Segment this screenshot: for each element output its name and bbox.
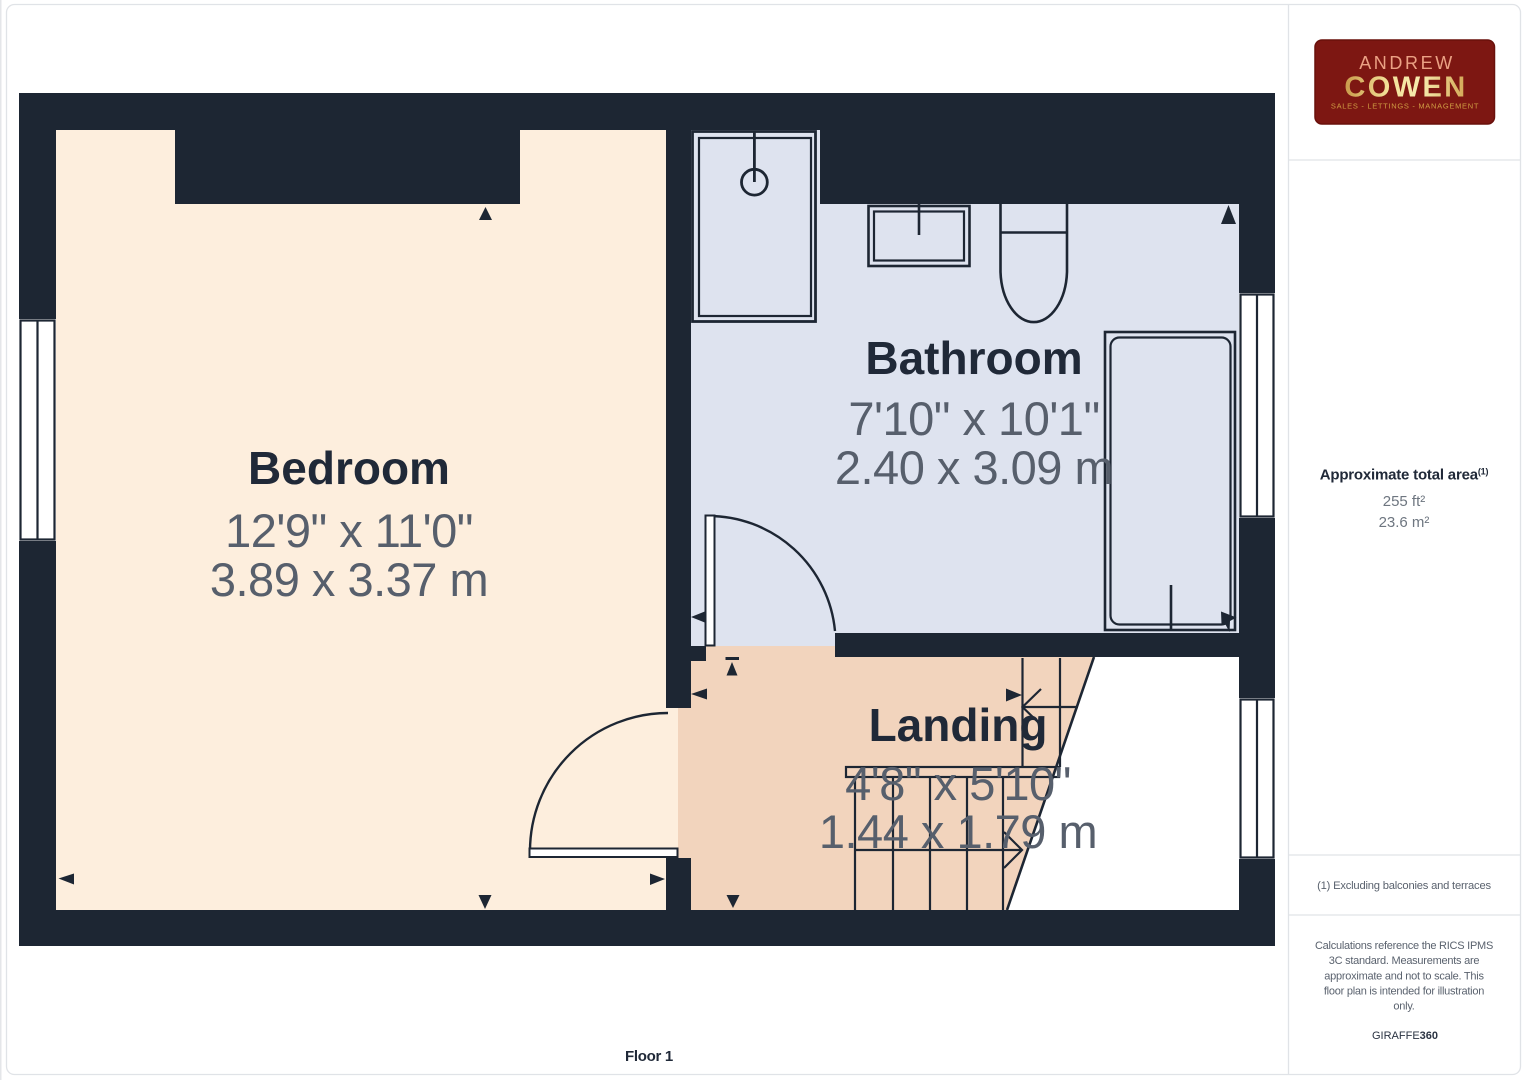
svg-text:Floor 1: Floor 1 (625, 1048, 673, 1065)
svg-text:3.89 x 3.37 m: 3.89 x 3.37 m (210, 553, 488, 606)
svg-text:7'10" x 10'1": 7'10" x 10'1" (848, 392, 1099, 445)
svg-text:23.6 m²: 23.6 m² (1379, 514, 1430, 531)
svg-text:Approximate total area(1): Approximate total area(1) (1320, 467, 1489, 484)
svg-text:Bathroom: Bathroom (865, 332, 1082, 384)
svg-text:12'9" x 11'0": 12'9" x 11'0" (225, 504, 473, 557)
svg-text:only.: only. (1393, 1001, 1414, 1013)
svg-text:1.44 x 1.79 m: 1.44 x 1.79 m (819, 805, 1097, 858)
svg-text:ANDREW: ANDREW (1359, 53, 1455, 73)
svg-text:3C standard. Measurements are: 3C standard. Measurements are (1329, 955, 1480, 967)
svg-text:2.40 x 3.09 m: 2.40 x 3.09 m (835, 441, 1113, 494)
svg-text:approximate and not to scale.: approximate and not to scale. This (1324, 971, 1484, 983)
svg-text:(1) Excluding balconies and te: (1) Excluding balconies and terraces (1317, 880, 1491, 892)
svg-text:SALES - LETTINGS - MANAGEMENT: SALES - LETTINGS - MANAGEMENT (1331, 102, 1479, 111)
svg-text:Landing: Landing (869, 699, 1048, 751)
svg-text:COWEN: COWEN (1344, 72, 1467, 104)
svg-text:Bedroom: Bedroom (248, 442, 450, 494)
svg-text:4'8" x 5'10": 4'8" x 5'10" (845, 757, 1071, 810)
svg-text:255 ft²: 255 ft² (1383, 493, 1426, 510)
svg-text:GIRAFFE360: GIRAFFE360 (1372, 1030, 1438, 1042)
svg-text:floor plan is intended for ill: floor plan is intended for illustration (1324, 986, 1484, 998)
svg-text:Calculations reference the RIC: Calculations reference the RICS IPMS (1315, 940, 1493, 952)
